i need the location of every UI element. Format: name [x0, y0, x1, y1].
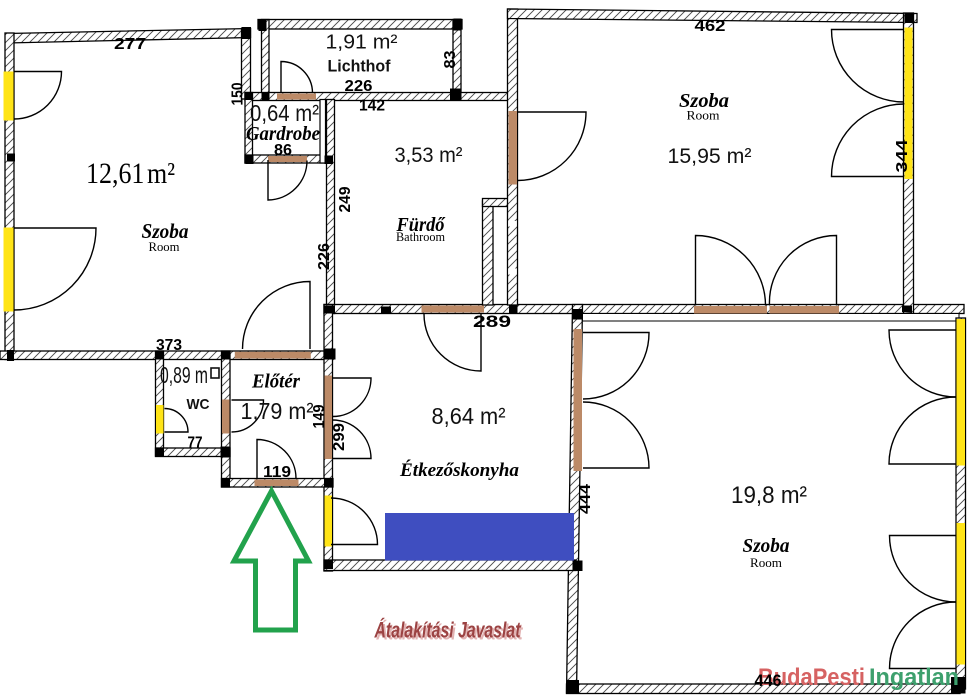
svg-text:83: 83: [442, 50, 459, 68]
svg-text:289: 289: [473, 312, 511, 331]
svg-text:149: 149: [311, 404, 328, 428]
svg-text:Étkezőskonyha: Étkezőskonyha: [399, 459, 519, 481]
svg-text:Room: Room: [149, 239, 180, 254]
svg-text:373: 373: [156, 337, 182, 354]
svg-text:12,61m²: 12,61m²: [86, 157, 175, 190]
svg-text:WC: WC: [187, 396, 210, 413]
svg-text:0,89 m: 0,89 m: [160, 362, 208, 388]
svg-text:1,91 m²: 1,91 m²: [326, 32, 398, 54]
svg-text:3,53 m²: 3,53 m²: [395, 144, 463, 167]
svg-text:344: 344: [894, 139, 911, 172]
svg-text:Room: Room: [687, 108, 720, 123]
svg-text:444: 444: [577, 484, 594, 514]
svg-text:Szoba: Szoba: [743, 535, 790, 557]
svg-text:Gardrobe: Gardrobe: [246, 123, 320, 145]
svg-text:Előtér: Előtér: [251, 371, 300, 393]
svg-text:19,8 m²: 19,8 m²: [731, 482, 807, 509]
svg-text:226: 226: [316, 243, 333, 270]
svg-text:142: 142: [359, 98, 385, 115]
svg-text:226: 226: [345, 78, 373, 95]
svg-text:15,95 m²: 15,95 m²: [668, 145, 752, 168]
svg-text:Átalakítási Javaslat: Átalakítási Javaslat: [374, 618, 522, 643]
svg-text:277: 277: [114, 36, 146, 53]
svg-text:299: 299: [331, 423, 348, 451]
svg-text:150: 150: [230, 82, 247, 105]
svg-text:77: 77: [188, 435, 203, 452]
svg-text:Bathroom: Bathroom: [396, 229, 445, 244]
svg-text:Lichthof: Lichthof: [328, 57, 391, 76]
svg-text:446: 446: [755, 671, 782, 690]
svg-text:Ingatlan: Ingatlan: [869, 664, 959, 691]
svg-text:8,64 m²: 8,64 m²: [432, 403, 506, 429]
svg-text:1,79 m²: 1,79 m²: [241, 398, 314, 424]
svg-text:249: 249: [337, 186, 354, 212]
svg-text:119: 119: [263, 464, 291, 481]
svg-text:462: 462: [695, 18, 726, 35]
svg-text:Room: Room: [750, 555, 782, 570]
